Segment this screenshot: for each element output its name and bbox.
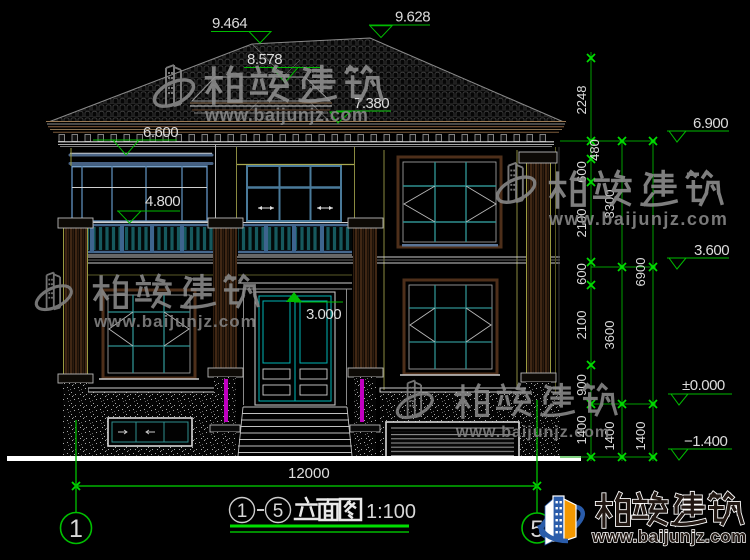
svg-text:600: 600 bbox=[574, 263, 589, 285]
svg-text:www.baijunjz.com: www.baijunjz.com bbox=[548, 209, 728, 229]
svg-text:5: 5 bbox=[273, 501, 284, 522]
svg-text:±0.000: ±0.000 bbox=[682, 377, 725, 394]
svg-text:12000: 12000 bbox=[288, 465, 330, 482]
svg-text:6.900: 6.900 bbox=[693, 115, 728, 132]
svg-text:6900: 6900 bbox=[633, 258, 648, 287]
svg-text:1: 1 bbox=[237, 501, 248, 522]
svg-text:1:100: 1:100 bbox=[366, 501, 416, 523]
svg-text:3.000: 3.000 bbox=[306, 306, 341, 323]
svg-text:3600: 3600 bbox=[602, 321, 617, 350]
svg-text:9.464: 9.464 bbox=[212, 15, 247, 32]
svg-text:1400: 1400 bbox=[633, 422, 648, 451]
svg-text:2248: 2248 bbox=[574, 86, 589, 115]
svg-text:www.baijunjz.com: www.baijunjz.com bbox=[591, 527, 747, 546]
svg-text:4.800: 4.800 bbox=[145, 193, 180, 210]
svg-text:1: 1 bbox=[69, 515, 83, 543]
svg-text:9.628: 9.628 bbox=[395, 9, 430, 26]
svg-text:6.600: 6.600 bbox=[143, 124, 178, 141]
svg-text:3.600: 3.600 bbox=[694, 242, 729, 259]
svg-text:2100: 2100 bbox=[574, 311, 589, 340]
svg-text:480: 480 bbox=[587, 139, 602, 161]
svg-text:www.baijunjz.com: www.baijunjz.com bbox=[93, 312, 257, 331]
svg-text:−1.400: −1.400 bbox=[684, 433, 727, 450]
svg-text:www.baijunjz.com: www.baijunjz.com bbox=[204, 105, 368, 125]
svg-text:www.baijunjz.com: www.baijunjz.com bbox=[455, 424, 610, 441]
